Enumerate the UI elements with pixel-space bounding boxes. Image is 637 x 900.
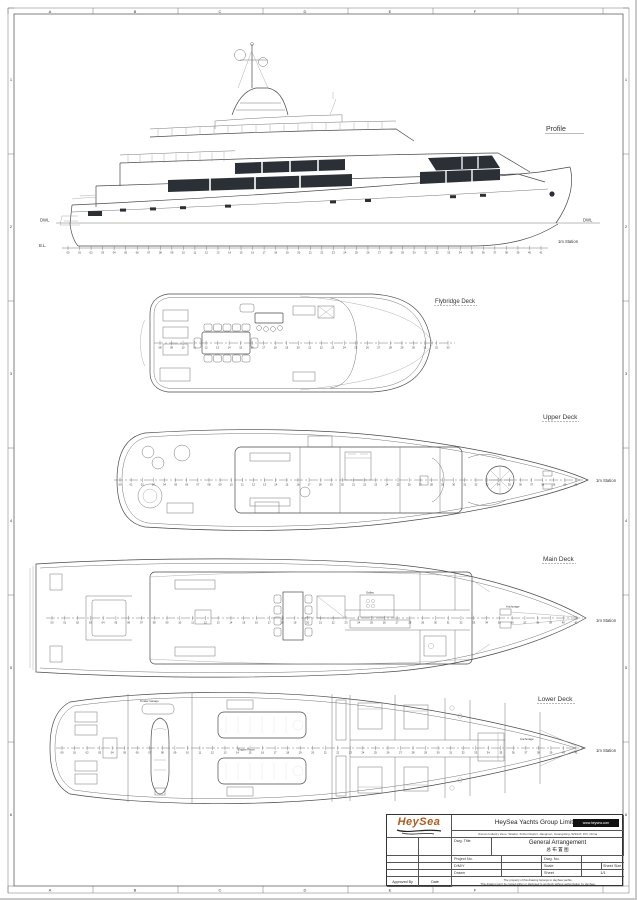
svg-text:34: 34 bbox=[487, 751, 490, 755]
svg-text:29: 29 bbox=[421, 621, 424, 625]
sofa bbox=[250, 453, 290, 461]
baseline-label: B.L. bbox=[39, 243, 46, 248]
svg-text:24: 24 bbox=[343, 251, 346, 255]
profile-title: Profile bbox=[546, 126, 566, 133]
svg-text:34: 34 bbox=[497, 483, 500, 487]
svg-text:13: 13 bbox=[217, 251, 220, 255]
svg-text:00: 00 bbox=[51, 621, 54, 625]
company-name-cell: HeySea Yachts Group Limited www.heysea.c… bbox=[452, 815, 624, 831]
svg-text:03: 03 bbox=[152, 483, 155, 487]
svg-text:04: 04 bbox=[163, 483, 166, 487]
svg-text:06: 06 bbox=[185, 483, 188, 487]
svg-text:12: 12 bbox=[252, 483, 255, 487]
svg-text:37: 37 bbox=[523, 621, 526, 625]
svg-text:05: 05 bbox=[174, 483, 177, 487]
windlass bbox=[500, 609, 511, 615]
svg-text:19: 19 bbox=[285, 346, 288, 350]
svg-text:09: 09 bbox=[170, 346, 173, 350]
windlass bbox=[500, 622, 511, 628]
svg-text:16: 16 bbox=[251, 251, 254, 255]
title-block: HeySea Approved By Date HeySea Yachts Gr… bbox=[386, 814, 623, 886]
sun-lounger bbox=[163, 310, 188, 321]
svg-text:F: F bbox=[474, 9, 477, 14]
svg-text:20: 20 bbox=[297, 251, 300, 255]
stairs bbox=[308, 436, 332, 447]
svg-text:32: 32 bbox=[436, 251, 439, 255]
svg-text:05: 05 bbox=[123, 751, 126, 755]
svg-text:39: 39 bbox=[552, 483, 555, 487]
profile-flybridge bbox=[150, 92, 414, 141]
svg-text:24: 24 bbox=[343, 346, 346, 350]
bar-stools bbox=[257, 326, 283, 332]
svg-text:24: 24 bbox=[361, 751, 364, 755]
dwg-title-cn: 总 布 置 图 bbox=[546, 847, 568, 853]
svg-text:20: 20 bbox=[311, 751, 314, 755]
svg-text:25: 25 bbox=[354, 346, 357, 350]
helm-console bbox=[293, 306, 315, 315]
svg-text:20: 20 bbox=[341, 483, 344, 487]
svg-text:E: E bbox=[389, 888, 392, 893]
sun-lounger bbox=[163, 327, 188, 338]
svg-text:27: 27 bbox=[378, 251, 381, 255]
svg-text:07: 07 bbox=[196, 483, 199, 487]
svg-text:29: 29 bbox=[401, 251, 404, 255]
flybridge-stairs bbox=[160, 368, 190, 381]
upper-deck-plan: Upper Deck 1m Station bbox=[114, 414, 617, 530]
grid-reference-marks: AABBCCDDEEFF112233445566 bbox=[8, 8, 629, 893]
svg-text:17: 17 bbox=[274, 751, 277, 755]
svg-text:31: 31 bbox=[463, 483, 466, 487]
svg-text:23: 23 bbox=[332, 251, 335, 255]
svg-text:6: 6 bbox=[10, 812, 13, 817]
svg-text:33: 33 bbox=[472, 621, 475, 625]
svg-text:18: 18 bbox=[286, 751, 289, 755]
svg-text:17: 17 bbox=[262, 346, 265, 350]
svg-text:05: 05 bbox=[124, 251, 127, 255]
lower-anchorage-label: Anchorage bbox=[520, 737, 534, 741]
fuel-tank bbox=[336, 756, 346, 796]
svg-text:40: 40 bbox=[528, 251, 531, 255]
svg-text:28: 28 bbox=[412, 751, 415, 755]
svg-text:38: 38 bbox=[541, 483, 544, 487]
drawing-sheet: AABBCCDDEEFF112233445566 Profile DWL DWL… bbox=[0, 0, 637, 900]
svg-text:2: 2 bbox=[10, 224, 13, 229]
svg-text:35: 35 bbox=[508, 483, 511, 487]
svg-text:25: 25 bbox=[370, 621, 373, 625]
svg-text:21: 21 bbox=[319, 621, 322, 625]
boarding-stairs bbox=[50, 646, 62, 662]
svg-text:01: 01 bbox=[78, 251, 81, 255]
svg-text:07: 07 bbox=[147, 251, 150, 255]
svg-text:B: B bbox=[134, 9, 137, 14]
svg-text:18: 18 bbox=[281, 621, 284, 625]
svg-text:35: 35 bbox=[498, 621, 501, 625]
svg-text:05: 05 bbox=[114, 621, 117, 625]
generator bbox=[227, 787, 253, 796]
svg-text:40: 40 bbox=[562, 621, 565, 625]
flybridge-deck-plan: Flybridge Deck bbox=[141, 294, 478, 392]
svg-text:27: 27 bbox=[399, 751, 402, 755]
svg-text:35: 35 bbox=[470, 251, 473, 255]
aft-deck-table bbox=[174, 445, 190, 461]
svg-text:15: 15 bbox=[239, 346, 242, 350]
flybridge-title: Flybridge Deck bbox=[435, 299, 476, 305]
generator bbox=[227, 700, 253, 709]
svg-text:12: 12 bbox=[211, 751, 214, 755]
svg-text:18: 18 bbox=[274, 346, 277, 350]
svg-text:09: 09 bbox=[166, 621, 169, 625]
svg-text:22: 22 bbox=[320, 251, 323, 255]
sheet-frame: AABBCCDDEEFF112233445566 bbox=[8, 8, 629, 893]
svg-text:1: 1 bbox=[625, 77, 628, 82]
svg-text:22: 22 bbox=[363, 483, 366, 487]
svg-text:25: 25 bbox=[374, 751, 377, 755]
svg-text:15: 15 bbox=[240, 251, 243, 255]
svg-text:3: 3 bbox=[10, 371, 13, 376]
svg-text:00: 00 bbox=[67, 251, 70, 255]
svg-text:31: 31 bbox=[447, 621, 450, 625]
svg-text:19: 19 bbox=[286, 251, 289, 255]
sheet-label: Sheet bbox=[542, 870, 582, 877]
svg-text:27: 27 bbox=[396, 621, 399, 625]
svg-text:01: 01 bbox=[63, 621, 66, 625]
dwg-title: General Arrangement bbox=[529, 840, 586, 846]
svg-text:A: A bbox=[49, 888, 52, 893]
svg-text:11: 11 bbox=[241, 483, 244, 487]
svg-text:29: 29 bbox=[400, 346, 403, 350]
svg-text:37: 37 bbox=[524, 751, 527, 755]
svg-text:25: 25 bbox=[397, 483, 400, 487]
svg-text:12: 12 bbox=[205, 346, 208, 350]
svg-text:16: 16 bbox=[255, 621, 258, 625]
svg-text:37: 37 bbox=[493, 251, 496, 255]
svg-text:26: 26 bbox=[408, 483, 411, 487]
svg-text:31: 31 bbox=[449, 751, 452, 755]
svg-text:30: 30 bbox=[437, 751, 440, 755]
mast-and-radar bbox=[232, 43, 288, 116]
dwl-label-left: DWL bbox=[40, 218, 50, 223]
tender-garage-label: Tender Garage bbox=[140, 699, 159, 703]
aft-stairs bbox=[167, 503, 193, 513]
svg-text:3: 3 bbox=[625, 371, 628, 376]
svg-text:32: 32 bbox=[435, 346, 438, 350]
flybridge-station-line: 0809101112131415161718192021222324252627… bbox=[154, 341, 455, 350]
svg-text:A: A bbox=[49, 9, 52, 14]
svg-text:27: 27 bbox=[419, 483, 422, 487]
main-station-label: 1m Station bbox=[596, 618, 617, 623]
svg-text:36: 36 bbox=[482, 251, 485, 255]
upper-title: Upper Deck bbox=[543, 414, 578, 421]
svg-text:C: C bbox=[219, 9, 222, 14]
saloon-sofa bbox=[175, 647, 215, 656]
svg-text:20: 20 bbox=[306, 621, 309, 625]
hull-windows bbox=[88, 194, 486, 216]
svg-text:11: 11 bbox=[199, 751, 202, 755]
company-logo: HeySea bbox=[387, 815, 452, 838]
svg-text:E: E bbox=[389, 9, 392, 14]
svg-text:15: 15 bbox=[285, 483, 288, 487]
day-head bbox=[424, 636, 446, 656]
drawing-sheet-svg: AABBCCDDEEFF112233445566 Profile DWL DWL… bbox=[0, 0, 637, 900]
svg-text:23: 23 bbox=[345, 621, 348, 625]
svg-text:14: 14 bbox=[229, 621, 232, 625]
lower-title: Lower Deck bbox=[538, 696, 573, 703]
svg-text:11: 11 bbox=[193, 346, 196, 350]
svg-text:28: 28 bbox=[389, 346, 392, 350]
svg-text:08: 08 bbox=[159, 251, 162, 255]
svg-text:16: 16 bbox=[297, 483, 300, 487]
svg-text:08: 08 bbox=[208, 483, 211, 487]
svg-text:28: 28 bbox=[430, 483, 433, 487]
svg-text:17: 17 bbox=[308, 483, 311, 487]
svg-text:21: 21 bbox=[308, 346, 311, 350]
svg-text:28: 28 bbox=[408, 621, 411, 625]
svg-text:21: 21 bbox=[324, 751, 327, 755]
svg-text:4: 4 bbox=[10, 518, 13, 523]
fuel-tank bbox=[336, 700, 346, 740]
svg-text:37: 37 bbox=[530, 483, 533, 487]
crew-bunk bbox=[75, 712, 97, 722]
svg-text:09: 09 bbox=[170, 251, 173, 255]
svg-text:D: D bbox=[304, 9, 307, 14]
circular-lounge bbox=[138, 484, 162, 508]
svg-text:32: 32 bbox=[474, 483, 477, 487]
saloon-sofa bbox=[175, 580, 215, 589]
svg-text:30: 30 bbox=[413, 251, 416, 255]
svg-text:26: 26 bbox=[383, 621, 386, 625]
tender-boat bbox=[151, 718, 169, 794]
upper-interior bbox=[138, 436, 552, 513]
svg-text:11: 11 bbox=[194, 251, 197, 255]
svg-text:33: 33 bbox=[447, 251, 450, 255]
svg-text:17: 17 bbox=[263, 251, 266, 255]
svg-text:29: 29 bbox=[424, 751, 427, 755]
main-anchorage-label: Anchorage bbox=[506, 605, 520, 609]
svg-text:33: 33 bbox=[447, 346, 450, 350]
svg-text:08: 08 bbox=[159, 346, 162, 350]
company-address: Jinman Industry Zone, Shadui, Xinhui Dis… bbox=[452, 831, 624, 838]
svg-text:39: 39 bbox=[516, 251, 519, 255]
svg-text:D: D bbox=[304, 888, 307, 893]
dwg-title-label: Dwg. Title bbox=[452, 838, 492, 856]
svg-text:10: 10 bbox=[182, 251, 185, 255]
svg-text:30: 30 bbox=[452, 483, 455, 487]
svg-text:00: 00 bbox=[119, 483, 122, 487]
svg-text:10: 10 bbox=[230, 483, 233, 487]
svg-text:19: 19 bbox=[299, 751, 302, 755]
svg-text:06: 06 bbox=[136, 251, 139, 255]
svg-text:41: 41 bbox=[575, 751, 578, 755]
svg-text:36: 36 bbox=[511, 621, 514, 625]
svg-text:09: 09 bbox=[219, 483, 222, 487]
main-station-line: 0001020304050607080910111213141516171819… bbox=[46, 616, 583, 625]
svg-text:24: 24 bbox=[357, 621, 360, 625]
dwl-label-right: DWL bbox=[583, 218, 593, 223]
svg-text:14: 14 bbox=[228, 346, 231, 350]
svg-text:13: 13 bbox=[224, 751, 227, 755]
crew-bunk bbox=[75, 725, 97, 735]
crew-bunk bbox=[75, 761, 97, 771]
svg-text:10: 10 bbox=[186, 751, 189, 755]
svg-text:08: 08 bbox=[153, 621, 156, 625]
svg-text:11: 11 bbox=[191, 621, 194, 625]
svg-text:C: C bbox=[219, 888, 222, 893]
copyright-line2: This drawing can't be copied either or d… bbox=[452, 882, 624, 886]
owner-bed bbox=[345, 452, 371, 480]
project-no-label: Project No. bbox=[452, 856, 502, 863]
svg-text:31: 31 bbox=[424, 346, 427, 350]
svg-text:26: 26 bbox=[387, 751, 390, 755]
profile-station-label: 1m Station bbox=[558, 239, 579, 244]
svg-text:12: 12 bbox=[205, 251, 208, 255]
svg-text:4: 4 bbox=[625, 518, 628, 523]
lower-deck-plan: Lower Deck 1m Station Tender Garage Engi… bbox=[50, 692, 617, 803]
svg-text:5: 5 bbox=[10, 665, 13, 670]
profile-view: Profile DWL DWL B.L. 1m Station bbox=[39, 43, 600, 249]
svg-text:27: 27 bbox=[377, 346, 380, 350]
lower-station-label: 1m Station bbox=[596, 748, 617, 753]
svg-text:33: 33 bbox=[474, 751, 477, 755]
svg-text:10: 10 bbox=[182, 346, 185, 350]
svg-text:24: 24 bbox=[385, 483, 388, 487]
svg-text:28: 28 bbox=[390, 251, 393, 255]
svg-text:36: 36 bbox=[519, 483, 522, 487]
profile-station-line: 0001020304050607080910111213141516171819… bbox=[62, 246, 548, 255]
satcom-dome bbox=[259, 58, 268, 67]
svg-text:00: 00 bbox=[61, 751, 64, 755]
svg-text:36: 36 bbox=[512, 751, 515, 755]
svg-text:02: 02 bbox=[76, 621, 79, 625]
svg-text:26: 26 bbox=[366, 346, 369, 350]
svg-text:13: 13 bbox=[263, 483, 266, 487]
svg-text:13: 13 bbox=[216, 346, 219, 350]
svg-text:04: 04 bbox=[111, 751, 114, 755]
svg-text:30: 30 bbox=[412, 346, 415, 350]
svg-text:04: 04 bbox=[113, 251, 116, 255]
svg-text:01: 01 bbox=[130, 483, 133, 487]
svg-text:32: 32 bbox=[460, 621, 463, 625]
boarding-stairs bbox=[50, 574, 62, 590]
svg-text:2: 2 bbox=[625, 224, 628, 229]
bar-counter bbox=[255, 313, 283, 323]
svg-text:15: 15 bbox=[242, 621, 245, 625]
anchor bbox=[549, 191, 554, 196]
svg-text:22: 22 bbox=[320, 346, 323, 350]
svg-text:22: 22 bbox=[332, 621, 335, 625]
website-badge: www.heysea.com bbox=[573, 819, 619, 827]
main-deck-plan: Main Deck 1m Station Galley bbox=[30, 556, 617, 677]
stairs bbox=[255, 502, 279, 513]
svg-text:13: 13 bbox=[217, 621, 220, 625]
svg-text:08: 08 bbox=[161, 751, 164, 755]
svg-text:34: 34 bbox=[459, 251, 462, 255]
logo-text: HeySea bbox=[398, 817, 441, 828]
svg-text:39: 39 bbox=[549, 751, 552, 755]
svg-text:03: 03 bbox=[101, 251, 104, 255]
svg-text:06: 06 bbox=[136, 751, 139, 755]
svg-text:02: 02 bbox=[86, 751, 89, 755]
svg-text:19: 19 bbox=[293, 621, 296, 625]
svg-text:23: 23 bbox=[331, 346, 334, 350]
svg-text:31: 31 bbox=[424, 251, 427, 255]
svg-text:02: 02 bbox=[90, 251, 93, 255]
svg-text:35: 35 bbox=[499, 751, 502, 755]
svg-text:5: 5 bbox=[625, 665, 628, 670]
crew-bunk bbox=[75, 774, 97, 784]
svg-text:32: 32 bbox=[462, 751, 465, 755]
svg-text:23: 23 bbox=[349, 751, 352, 755]
jet-ski bbox=[142, 704, 174, 714]
svg-text:30: 30 bbox=[434, 621, 437, 625]
svg-text:38: 38 bbox=[505, 251, 508, 255]
sheet-value: 1/1 bbox=[582, 870, 624, 877]
svg-text:6: 6 bbox=[625, 812, 628, 817]
company-name: HeySea Yachts Group Limited bbox=[495, 819, 580, 826]
svg-text:19: 19 bbox=[330, 483, 333, 487]
svg-text:04: 04 bbox=[102, 621, 105, 625]
svg-text:41: 41 bbox=[540, 251, 543, 255]
date-label: Date bbox=[419, 877, 452, 887]
main-title: Main Deck bbox=[543, 556, 574, 563]
approved-by-label: Approved By bbox=[387, 877, 419, 887]
galley bbox=[360, 595, 394, 617]
svg-text:18: 18 bbox=[274, 251, 277, 255]
galley-label: Galley bbox=[366, 591, 375, 595]
scale-label: Scale bbox=[542, 863, 582, 870]
svg-text:16: 16 bbox=[261, 751, 264, 755]
svg-text:18: 18 bbox=[319, 483, 322, 487]
svg-text:03: 03 bbox=[98, 751, 101, 755]
svg-text:20: 20 bbox=[297, 346, 300, 350]
svg-text:23: 23 bbox=[374, 483, 377, 487]
svg-text:33: 33 bbox=[486, 483, 489, 487]
svg-text:26: 26 bbox=[367, 251, 370, 255]
sheet-size-label: Sheet Size bbox=[602, 863, 624, 870]
svg-text:1: 1 bbox=[10, 77, 13, 82]
logo-wave bbox=[396, 828, 442, 835]
svg-text:09: 09 bbox=[173, 751, 176, 755]
dmy-label: D/M/Y bbox=[452, 863, 502, 870]
svg-text:17: 17 bbox=[268, 621, 271, 625]
svg-text:06: 06 bbox=[127, 621, 130, 625]
svg-text:14: 14 bbox=[228, 251, 231, 255]
svg-text:34: 34 bbox=[485, 621, 488, 625]
svg-text:14: 14 bbox=[274, 483, 277, 487]
dining-table bbox=[283, 592, 303, 640]
svg-text:22: 22 bbox=[336, 751, 339, 755]
dining-chairs bbox=[274, 595, 312, 636]
svg-text:16: 16 bbox=[251, 346, 254, 350]
dwg-title-cell: General Arrangement 总 布 置 图 bbox=[492, 838, 624, 856]
copyright-cell: The property of this drawing belongs to … bbox=[452, 877, 624, 887]
upper-station-label: 1m Station bbox=[596, 478, 617, 483]
svg-text:21: 21 bbox=[352, 483, 355, 487]
svg-text:10: 10 bbox=[178, 621, 181, 625]
drawn-label: Drawn bbox=[452, 870, 502, 877]
dwg-no-label: Dwg. No. bbox=[542, 856, 582, 863]
svg-text:07: 07 bbox=[140, 621, 143, 625]
svg-text:21: 21 bbox=[309, 251, 312, 255]
svg-text:B: B bbox=[134, 888, 137, 893]
radar-dome bbox=[235, 50, 246, 61]
svg-text:01: 01 bbox=[73, 751, 76, 755]
svg-text:F: F bbox=[474, 888, 477, 893]
svg-text:25: 25 bbox=[355, 251, 358, 255]
